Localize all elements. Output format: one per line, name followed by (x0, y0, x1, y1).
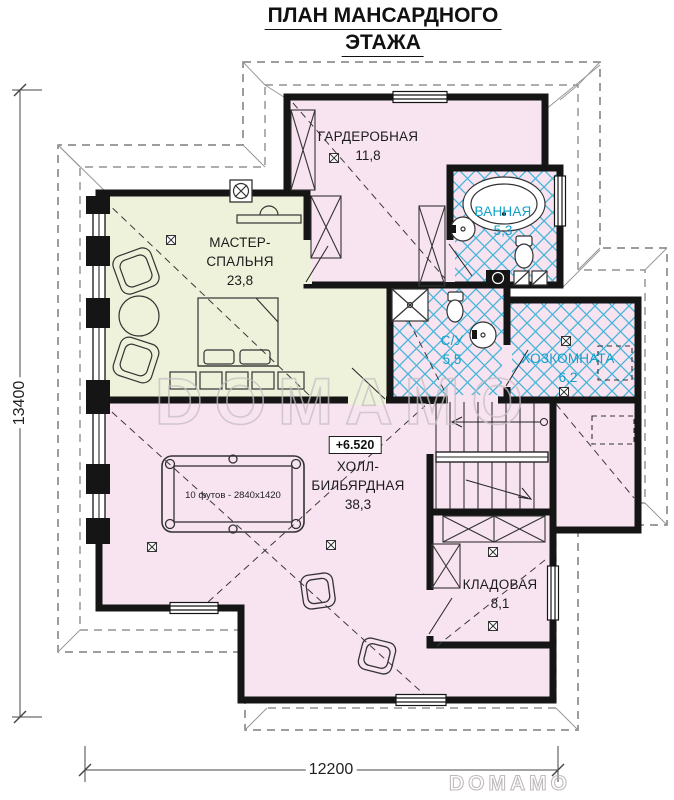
room-label-wc: С/У 5,5 (441, 332, 464, 370)
washer-row (486, 270, 547, 286)
watermark-corner: DOMAMO (449, 772, 571, 795)
window-bathroom-east (555, 176, 566, 226)
room-label-master: МАСТЕР- СПАЛЬНЯ 23,8 (206, 234, 273, 291)
bath-toilet-icon (515, 236, 533, 268)
window-hall-south (396, 695, 446, 706)
wc-sink-icon (470, 322, 496, 348)
window-top (393, 92, 447, 103)
billiard-table-label: 10 футов - 2840x1420 (185, 490, 281, 501)
room-label-storage: КЛАДОВАЯ 8,1 (463, 576, 538, 614)
window-storage-east (548, 566, 559, 620)
plan-title: ПЛАН МАНСАРДНОГО ЭТАЖА (265, 3, 502, 57)
room-label-hall: ХОЛЛ- БИЛЬЯРДНАЯ 38,3 (311, 458, 404, 515)
room-label-bathroom: ВАННАЯ 5,3 (474, 203, 531, 241)
bath-sink-icon (450, 217, 475, 241)
window-hall-step (170, 603, 218, 614)
plan-title-line1: ПЛАН МАНСАРДНОГО (265, 3, 502, 30)
plan-title-line2: ЭТАЖА (342, 30, 424, 57)
vent-icon (230, 180, 252, 202)
room-label-wardrobe: ГАРДЕРОБНАЯ 11,8 (318, 128, 418, 166)
shower-icon (392, 289, 428, 321)
room-stair-right (553, 400, 638, 530)
room-label-utility: ХОЗКОМНАТА 6,2 (521, 350, 614, 388)
elevation-mark: +6.520 (329, 436, 382, 454)
dimension-label-bottom: 12200 (306, 761, 357, 779)
dimension-label-left: 13400 (11, 378, 29, 429)
watermark-center: DOMAMO (155, 364, 535, 438)
floor-plan-drawing: 10 футов - 2840x1420 DOMAMO DOMAMO (0, 0, 674, 800)
wc-toilet-icon (447, 292, 463, 322)
floor-plan-page: 10 футов - 2840x1420 DOMAMO DOMAMO ПЛАН … (0, 0, 674, 800)
